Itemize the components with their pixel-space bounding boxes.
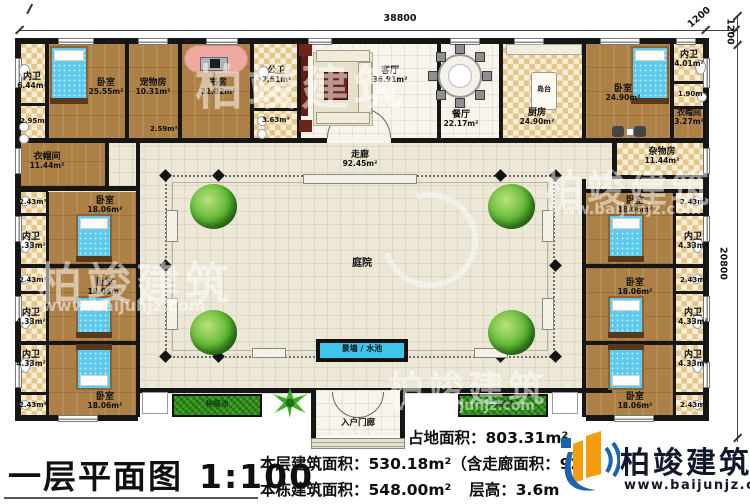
room-label-bath-tl-sub: 2.95m² bbox=[20, 117, 48, 125]
suite-cell-label: 2.43m² bbox=[19, 198, 47, 206]
chair bbox=[475, 90, 485, 100]
suite-bath-label: 内卫4.33m² bbox=[675, 308, 711, 326]
room-label-pub-bath-sub: 3.63m² bbox=[262, 116, 290, 124]
bench bbox=[303, 174, 417, 184]
suite-bath-label: 内卫4.33m² bbox=[13, 350, 49, 368]
bed bbox=[76, 214, 112, 262]
dimension-line bbox=[18, 30, 738, 31]
suite-bedroom-label: 卧室18.06m² bbox=[607, 392, 663, 410]
chair bbox=[428, 71, 438, 81]
room-label-pub-bath: 公卫7.51m² bbox=[253, 66, 300, 84]
room-label-closet-tr: 衣帽间3.27m² bbox=[665, 109, 713, 126]
wall bbox=[586, 264, 709, 268]
wall bbox=[582, 179, 586, 417]
sink bbox=[19, 134, 29, 144]
side-table bbox=[299, 44, 312, 56]
bench bbox=[252, 348, 286, 358]
room-label-closet-l: 衣帽间11.44m² bbox=[17, 152, 77, 170]
room-label-pet: 宠物房10.31m² bbox=[127, 78, 179, 96]
room-label-dining: 餐厅22.17m² bbox=[433, 110, 489, 128]
wall bbox=[673, 192, 676, 417]
wall bbox=[676, 392, 709, 395]
kitchen-counter bbox=[506, 44, 582, 55]
room-label-kitchen: 厨房24.90m² bbox=[509, 108, 565, 126]
dimension-offset-b: 1200 bbox=[725, 12, 736, 52]
chair bbox=[436, 52, 446, 62]
bench bbox=[166, 210, 178, 242]
company-name: 柏竣建筑 bbox=[620, 438, 750, 482]
chair bbox=[634, 126, 646, 137]
wall bbox=[586, 341, 709, 345]
suite-bath-label: 内卫4.33m² bbox=[13, 308, 49, 326]
suite-cell-label: 2.43m² bbox=[19, 276, 47, 284]
bench bbox=[166, 298, 178, 330]
suite-bedroom-label: 卧室18.06m² bbox=[77, 278, 133, 296]
pool-label: 景墙 / 水池 bbox=[316, 345, 408, 354]
wall bbox=[15, 392, 48, 395]
wall bbox=[250, 42, 254, 140]
room-label-bath-tl: 内卫6.44m² bbox=[13, 72, 51, 90]
suite-bedroom-label: 卧室18.06m² bbox=[607, 278, 663, 296]
window bbox=[206, 38, 238, 45]
side-door-left bbox=[142, 392, 168, 414]
suite-bedroom-label: 卧室18.06m² bbox=[77, 392, 133, 410]
suite-cell-label: 2.43m² bbox=[680, 276, 708, 284]
wall bbox=[15, 138, 327, 143]
wall bbox=[15, 189, 48, 192]
suite-bath-label: 内卫4.33m² bbox=[675, 350, 711, 368]
room-label-living: 客厅36.91m² bbox=[362, 66, 418, 84]
room-label-storage-r: 杂物房11.44m² bbox=[631, 147, 693, 165]
chair bbox=[482, 71, 492, 81]
side-table bbox=[299, 120, 312, 132]
stat-floor-area: 本层建筑面积：530.18m²（含走廊面积：92 bbox=[260, 452, 581, 474]
island-label: 岛台 bbox=[531, 86, 557, 94]
company-logo-mark bbox=[556, 426, 620, 500]
study-monitor bbox=[210, 59, 220, 68]
tv-cabinet bbox=[301, 56, 308, 116]
window bbox=[676, 38, 696, 45]
chair bbox=[436, 90, 446, 100]
logo-icon bbox=[556, 426, 620, 500]
small-table bbox=[626, 128, 634, 136]
wall bbox=[15, 291, 48, 294]
bench bbox=[542, 210, 554, 242]
stat-building-row: 本栋建筑面积：548.00m² 层高：3.6m bbox=[260, 478, 559, 500]
suite-bedroom-label: 卧室18.06m² bbox=[77, 196, 133, 214]
bed bbox=[76, 344, 112, 390]
wall bbox=[499, 42, 503, 140]
floor-plan-canvas: 景墙 / 水池 种植池 种植池 入户门廊 bbox=[0, 0, 750, 504]
window bbox=[703, 148, 710, 174]
wall bbox=[46, 192, 49, 417]
wall bbox=[612, 143, 617, 179]
wall bbox=[105, 140, 109, 189]
room-label-bedroom-tl: 卧室25.55m² bbox=[80, 78, 132, 96]
wall bbox=[390, 138, 709, 143]
dimension-line bbox=[737, 16, 738, 442]
wall bbox=[45, 42, 49, 140]
wall bbox=[676, 291, 709, 294]
room-label-bath-tr: 内卫4.01m² bbox=[667, 50, 711, 68]
suite-bath-label: 内卫4.33m² bbox=[675, 232, 711, 250]
bed bbox=[608, 214, 644, 262]
porch-label: 入户门廊 bbox=[316, 419, 400, 429]
dimension-width: 38800 bbox=[370, 13, 430, 24]
window bbox=[600, 38, 640, 45]
tree bbox=[190, 184, 237, 229]
suite-bath-label: 内卫4.33m² bbox=[13, 232, 49, 250]
wall bbox=[612, 175, 709, 179]
suite-cell-label: 2.43m² bbox=[680, 198, 708, 206]
wall bbox=[582, 42, 586, 140]
wall bbox=[15, 264, 138, 268]
room-label-corridor: 走廊92.45m² bbox=[332, 150, 388, 168]
suite-cell-label: 2.43m² bbox=[680, 401, 708, 409]
dining-table-center bbox=[448, 64, 472, 88]
tree bbox=[488, 310, 535, 355]
plan-title: 一层平面图 bbox=[8, 450, 183, 498]
window bbox=[58, 38, 94, 45]
company-website: www.baijunjz.com bbox=[624, 478, 750, 493]
wall bbox=[253, 108, 297, 111]
dimension-height: 20800 bbox=[718, 241, 729, 287]
chair bbox=[455, 44, 465, 54]
wall bbox=[311, 390, 316, 438]
living-door-gap bbox=[327, 138, 391, 143]
wall bbox=[136, 143, 140, 417]
tree bbox=[488, 184, 535, 229]
chair bbox=[612, 126, 624, 137]
bed bbox=[608, 344, 644, 390]
bench bbox=[542, 298, 554, 330]
room-label-bath-tr-sub: 1.90m² bbox=[678, 90, 706, 98]
stat-site-area: 占地面积：803.31m² bbox=[408, 426, 568, 448]
porch-steps bbox=[311, 438, 405, 449]
room-label-study: 书房22.82m² bbox=[192, 78, 244, 96]
window bbox=[58, 415, 98, 422]
suite-cell-label: 2.43m² bbox=[19, 401, 47, 409]
bed bbox=[608, 296, 644, 338]
coffee-table bbox=[324, 72, 348, 100]
room-label-bedroom-tr: 卧室24.90m² bbox=[595, 84, 651, 102]
chair bbox=[475, 52, 485, 62]
stat-floor-height: 层高：3.6m bbox=[469, 478, 559, 500]
stat-building-area: 本栋建筑面积：548.00m² bbox=[260, 478, 451, 500]
room-label-courtyard: 庭院 bbox=[334, 258, 390, 269]
suite-bedroom-label: 卧室18.06m² bbox=[607, 196, 663, 214]
side-door-right bbox=[552, 392, 578, 414]
sofa bbox=[316, 112, 370, 124]
dimension-tick bbox=[26, 4, 33, 14]
bed bbox=[76, 296, 112, 338]
window bbox=[138, 38, 168, 45]
window bbox=[614, 415, 654, 422]
wall bbox=[15, 103, 45, 106]
wall bbox=[586, 189, 709, 193]
wall bbox=[400, 390, 405, 438]
sofa bbox=[316, 50, 370, 62]
tree bbox=[190, 310, 237, 355]
planter-right-label: 种植池 bbox=[458, 400, 548, 408]
chair bbox=[455, 98, 465, 108]
room-label-hall-cell: 2.59m² bbox=[150, 125, 178, 133]
sink bbox=[257, 129, 267, 139]
planter-left-label: 种植池 bbox=[172, 400, 262, 408]
title-underline bbox=[4, 497, 258, 499]
